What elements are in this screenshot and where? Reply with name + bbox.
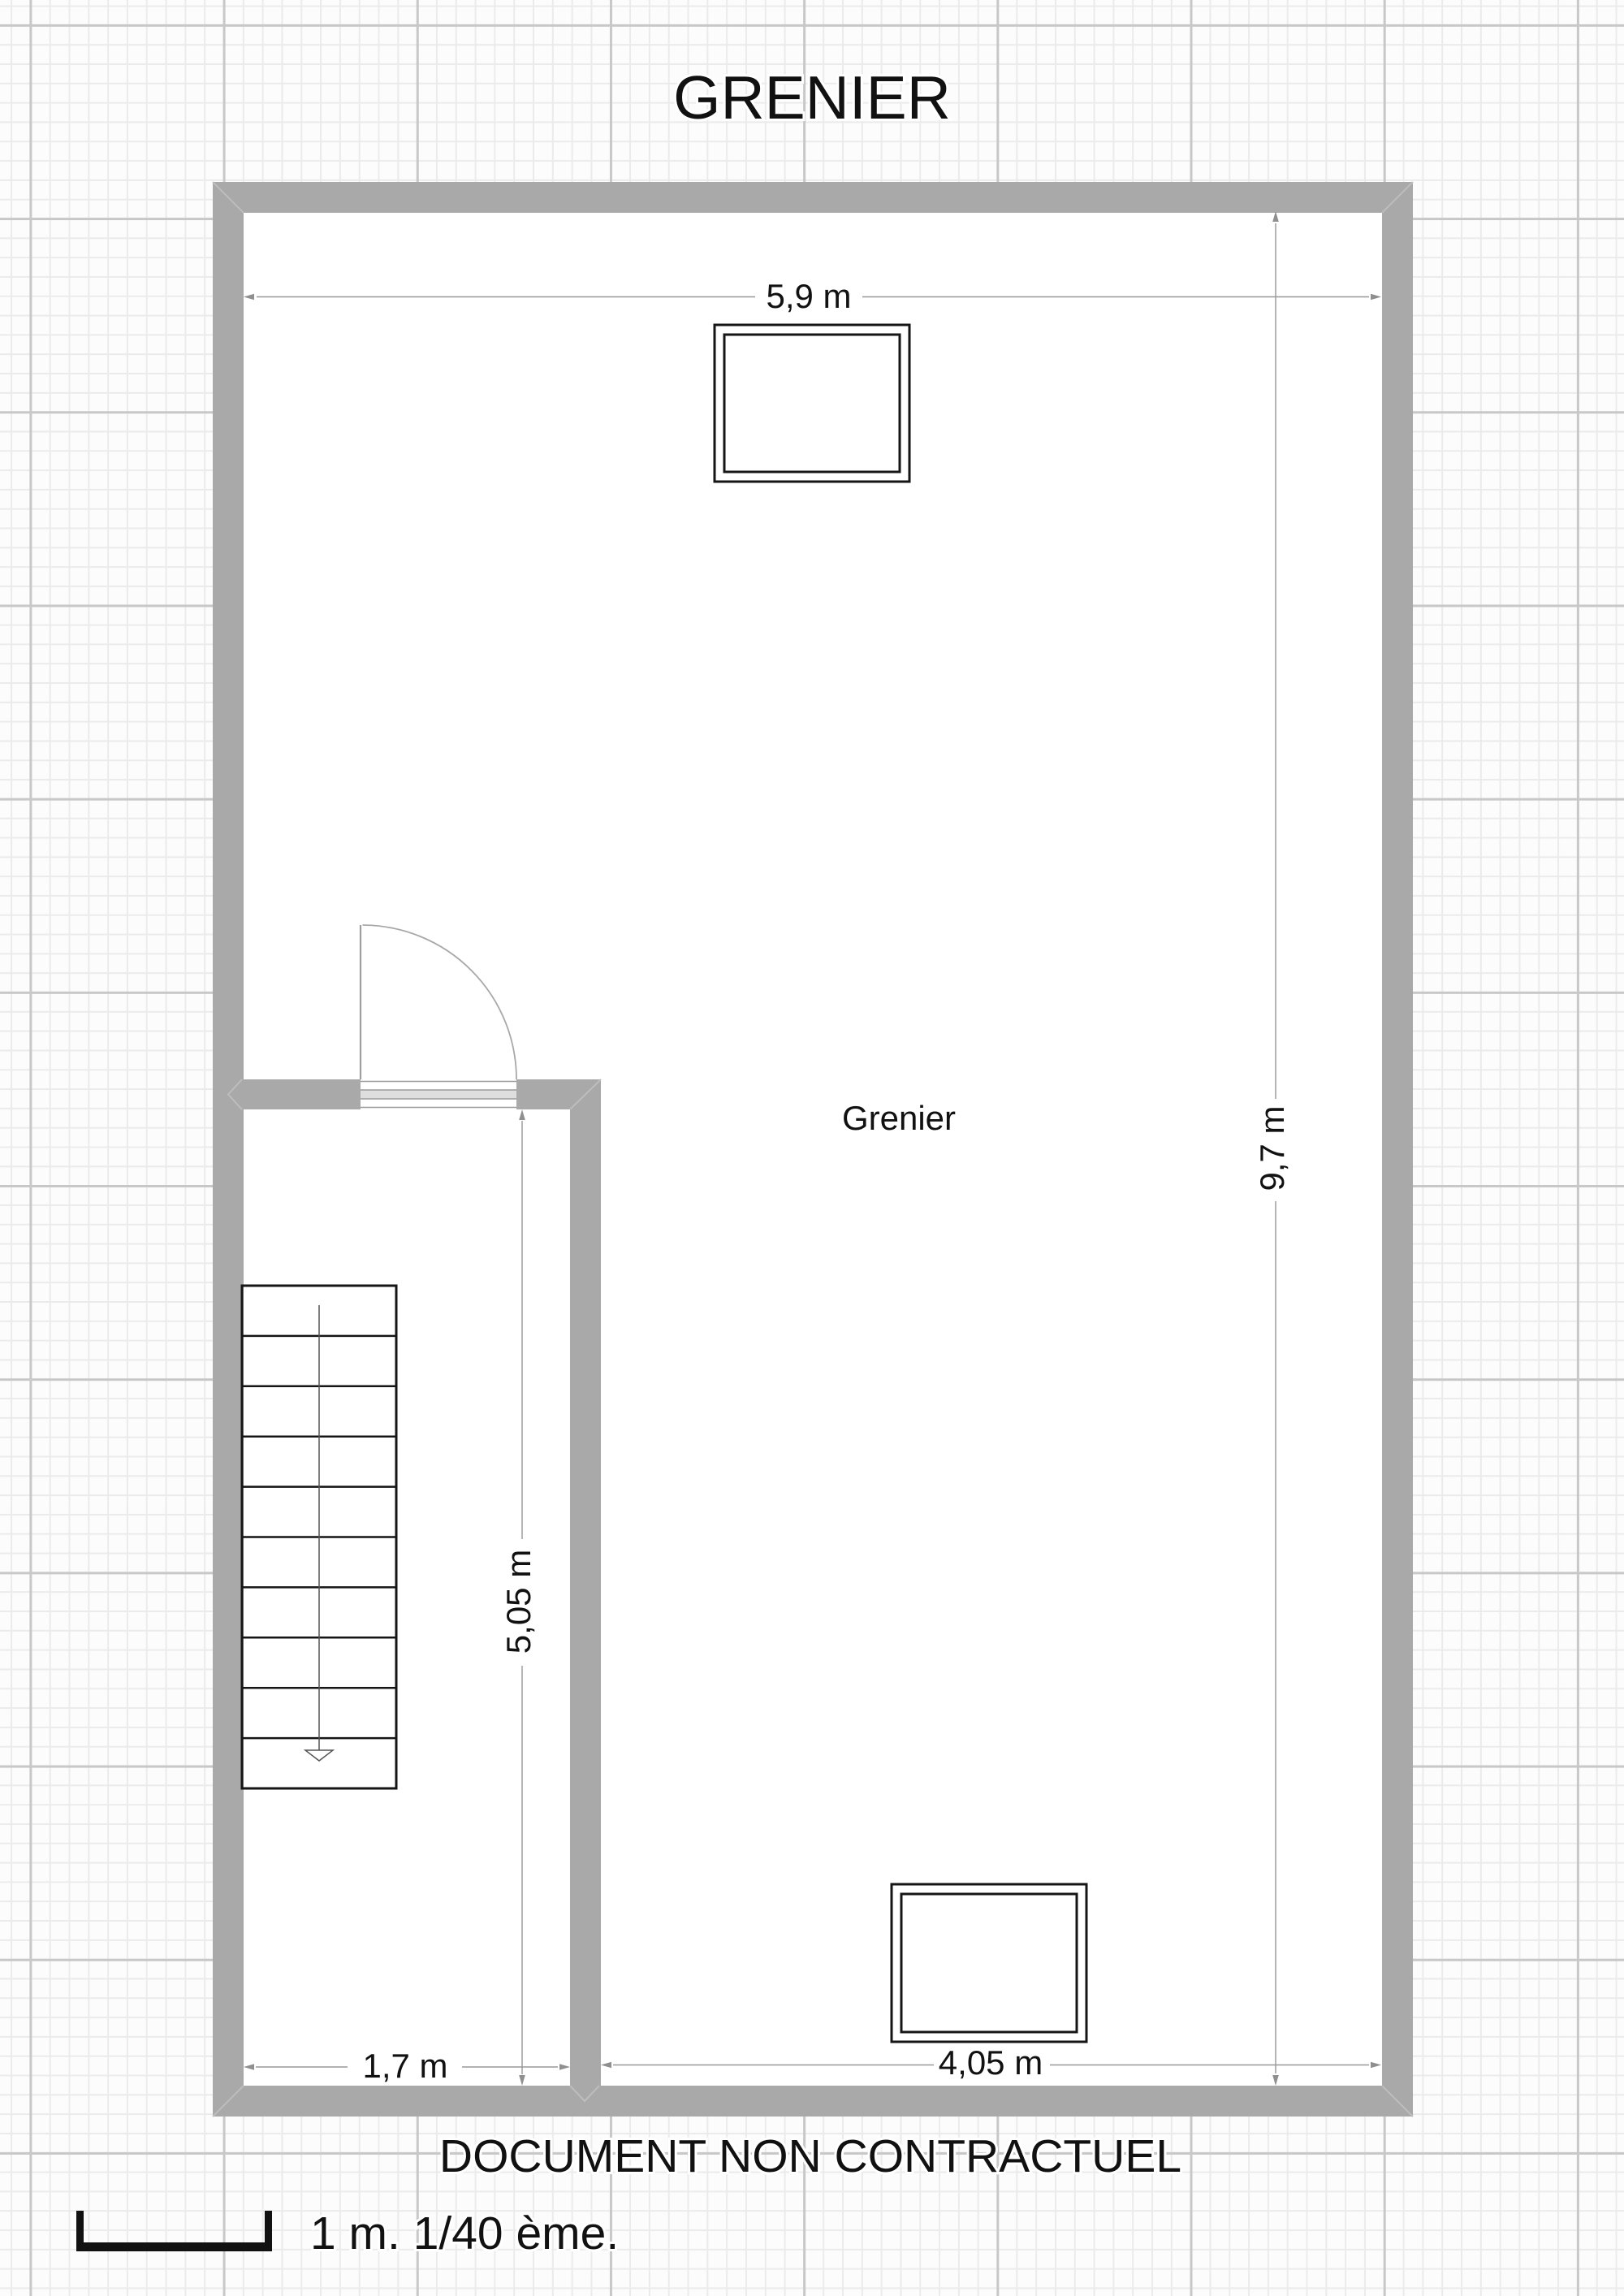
svg-text:5,05 m: 5,05 m [499,1550,538,1654]
svg-text:4,05 m: 4,05 m [939,2043,1043,2082]
svg-text:5,9 m: 5,9 m [766,277,851,315]
svg-text:9,7 m: 9,7 m [1253,1105,1291,1191]
svg-text:1 m. 1/40 ème.: 1 m. 1/40 ème. [310,2207,619,2259]
svg-text:1,7 m: 1,7 m [362,2047,447,2085]
svg-text:DOCUMENT NON CONTRACTUEL: DOCUMENT NON CONTRACTUEL [439,2130,1181,2182]
svg-text:GRENIER: GRENIER [673,63,951,132]
svg-text:Grenier: Grenier [842,1099,956,1137]
